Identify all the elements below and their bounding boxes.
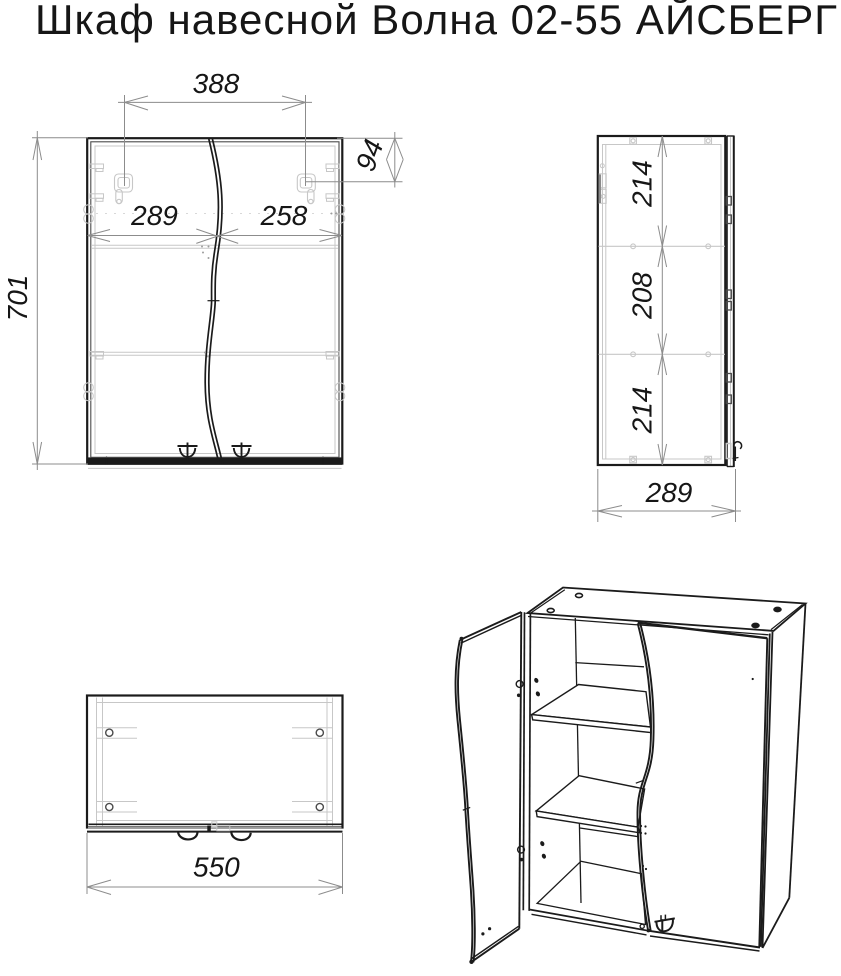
svg-text:258: 258 (260, 200, 308, 231)
svg-text:214: 214 (627, 160, 658, 208)
svg-text:289: 289 (645, 477, 693, 508)
svg-text:Шкаф навесной Волна 02-55 АЙСБ: Шкаф навесной Волна 02-55 АЙСБЕРГ (35, 0, 837, 43)
svg-text:388: 388 (193, 68, 240, 99)
svg-text:214: 214 (627, 387, 658, 435)
svg-text:701: 701 (2, 275, 33, 322)
svg-text:289: 289 (130, 200, 178, 231)
svg-text:550: 550 (193, 852, 240, 883)
svg-text:208: 208 (627, 272, 658, 320)
